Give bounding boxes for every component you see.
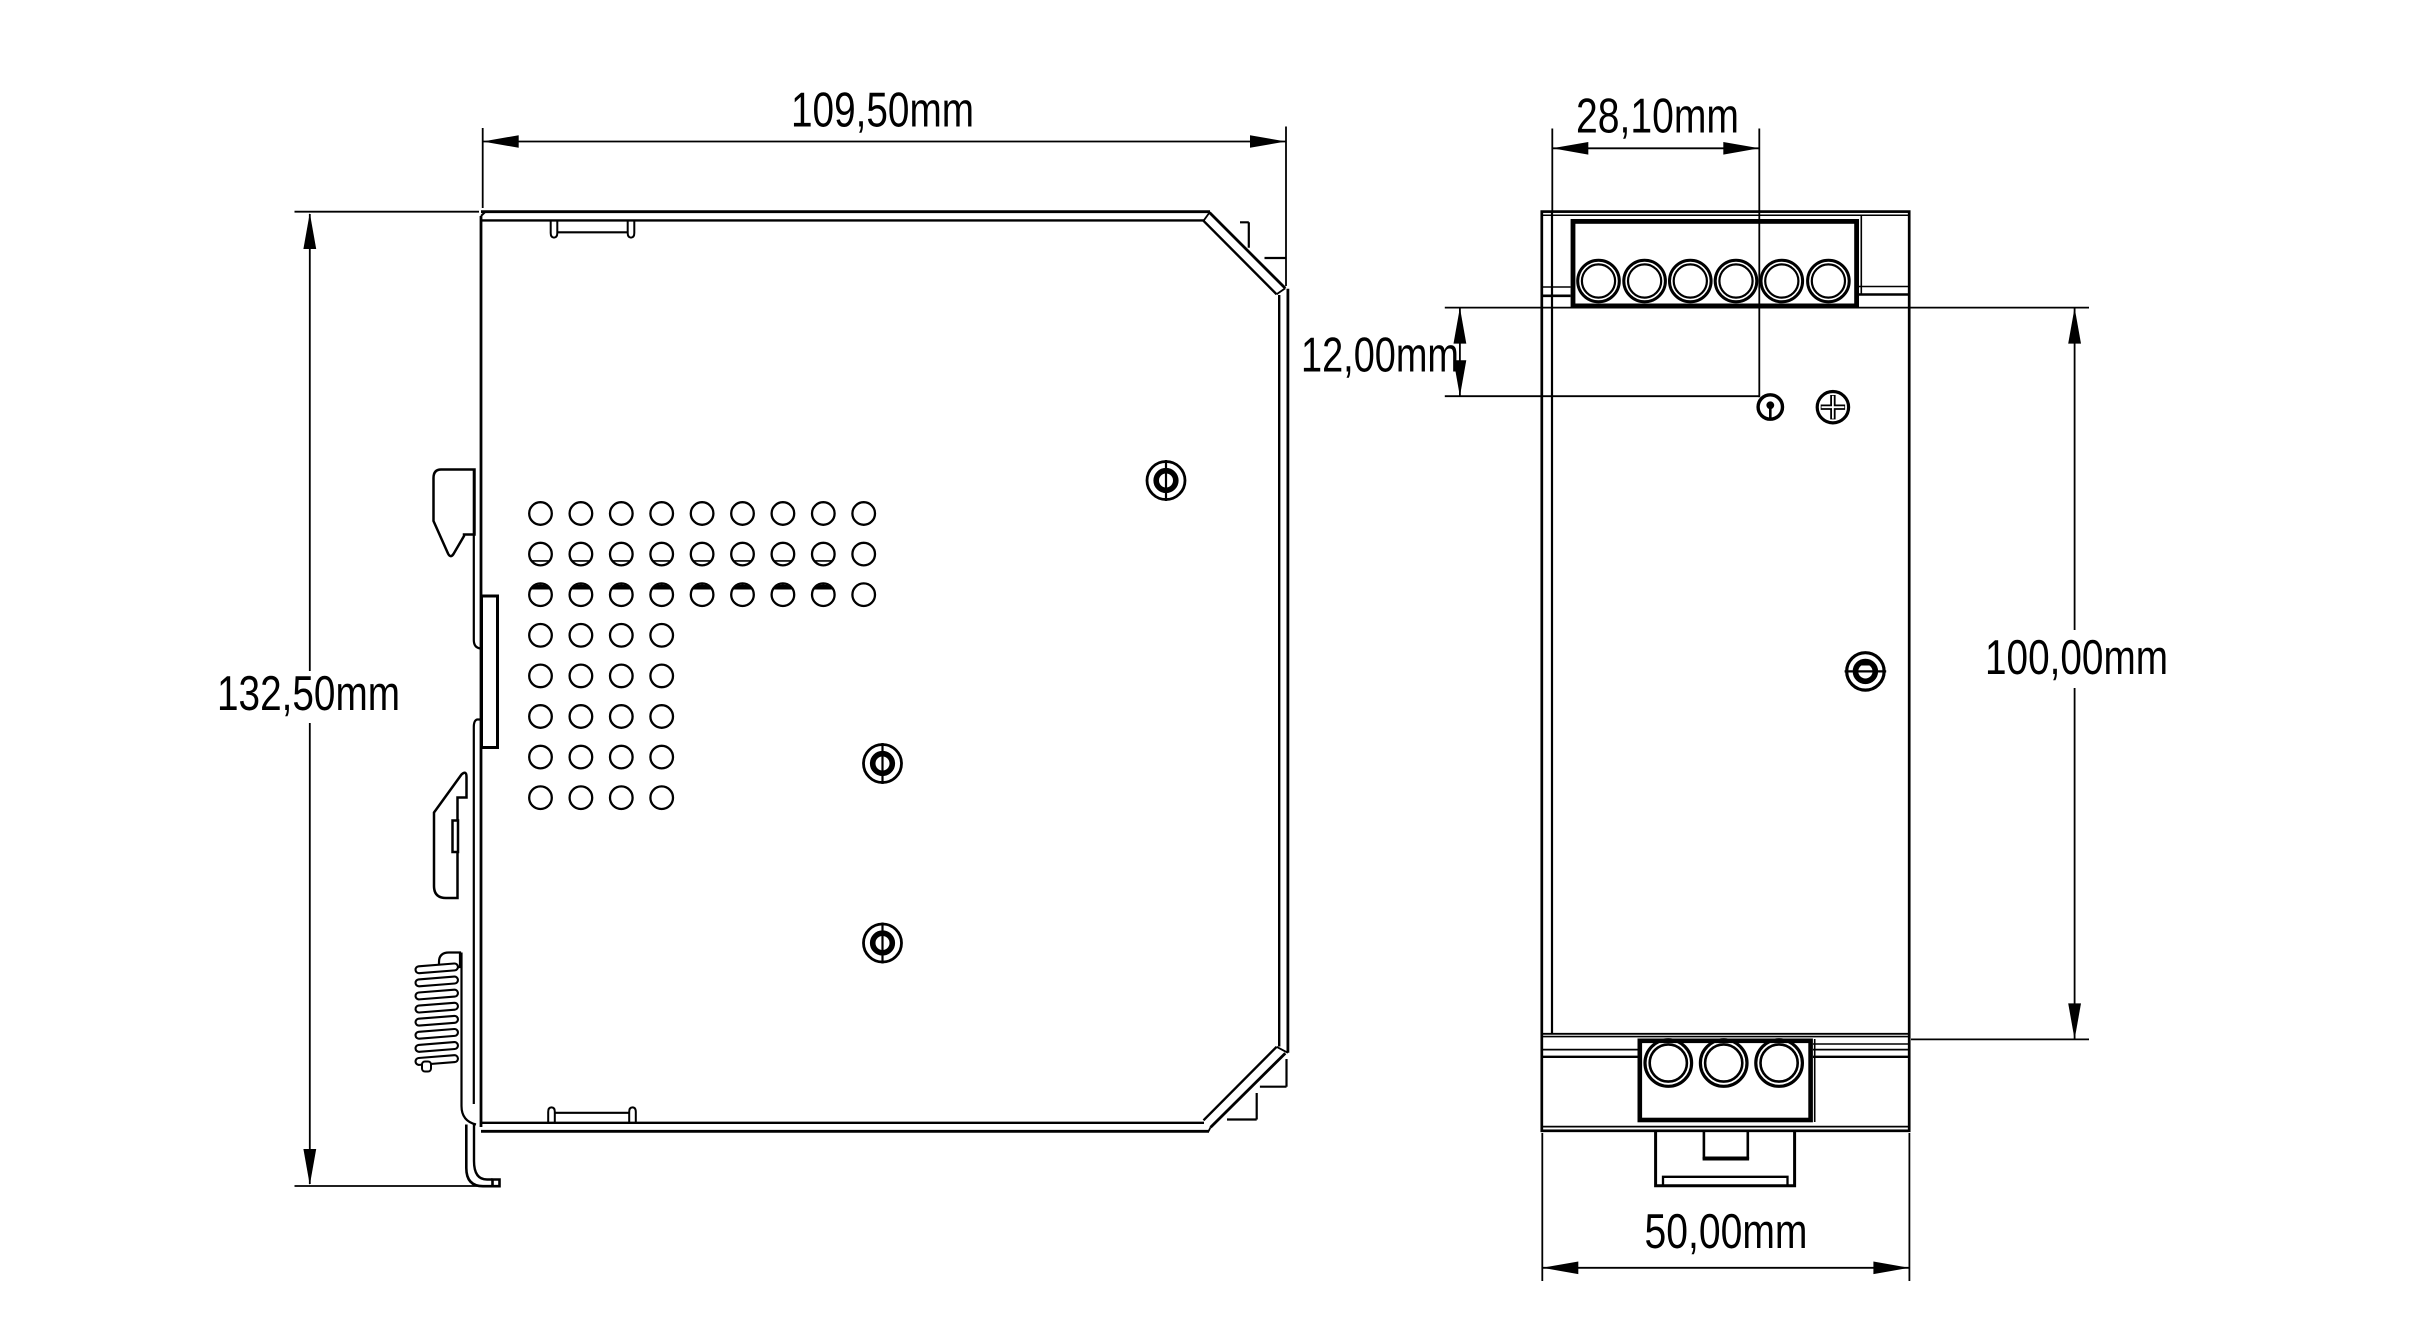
svg-text:28,10mm: 28,10mm <box>1576 90 1739 144</box>
svg-text:100,00mm: 100,00mm <box>1985 631 2168 685</box>
svg-text:12,00mm: 12,00mm <box>1301 329 1459 383</box>
svg-text:50,00mm: 50,00mm <box>1645 1205 1808 1259</box>
svg-text:132,50mm: 132,50mm <box>217 667 400 721</box>
svg-text:109,50mm: 109,50mm <box>791 84 974 138</box>
